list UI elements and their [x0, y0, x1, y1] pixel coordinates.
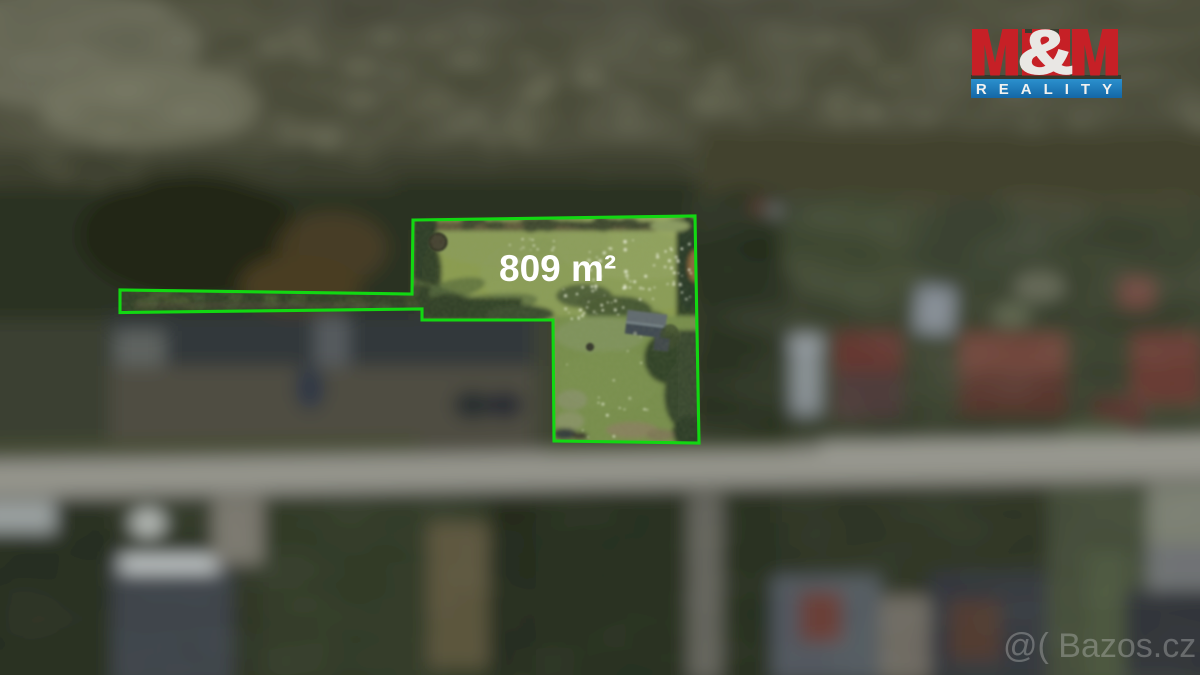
svg-text:@( Bazos.cz: @( Bazos.cz	[1003, 627, 1196, 665]
svg-text:REALITY: REALITY	[976, 81, 1124, 98]
svg-text:809 m²: 809 m²	[499, 248, 616, 289]
svg-text:&: &	[1018, 17, 1074, 87]
